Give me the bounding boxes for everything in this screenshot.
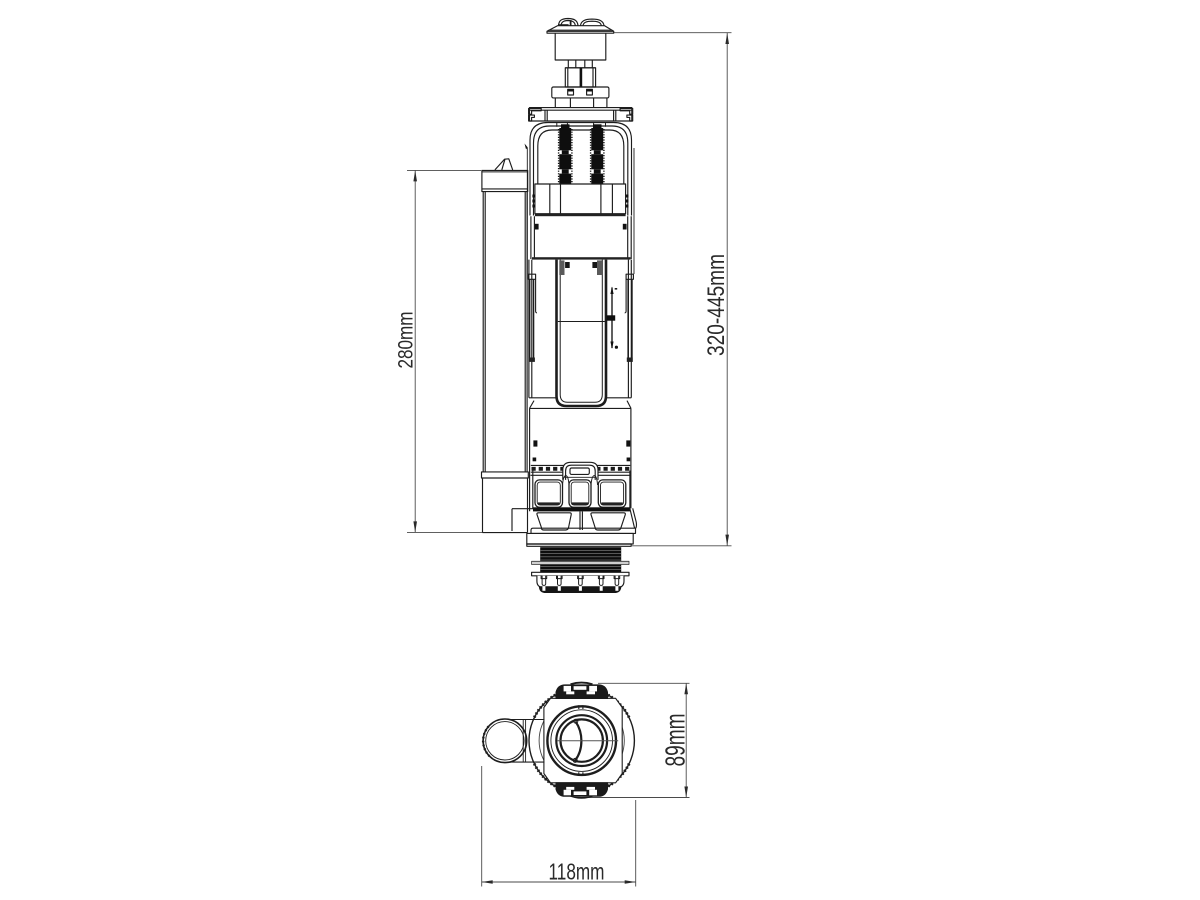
svg-text:89mm: 89mm [660, 714, 691, 767]
svg-text:320-445mm: 320-445mm [703, 254, 730, 356]
svg-text:280mm: 280mm [395, 312, 418, 369]
svg-text:118mm: 118mm [549, 859, 605, 885]
